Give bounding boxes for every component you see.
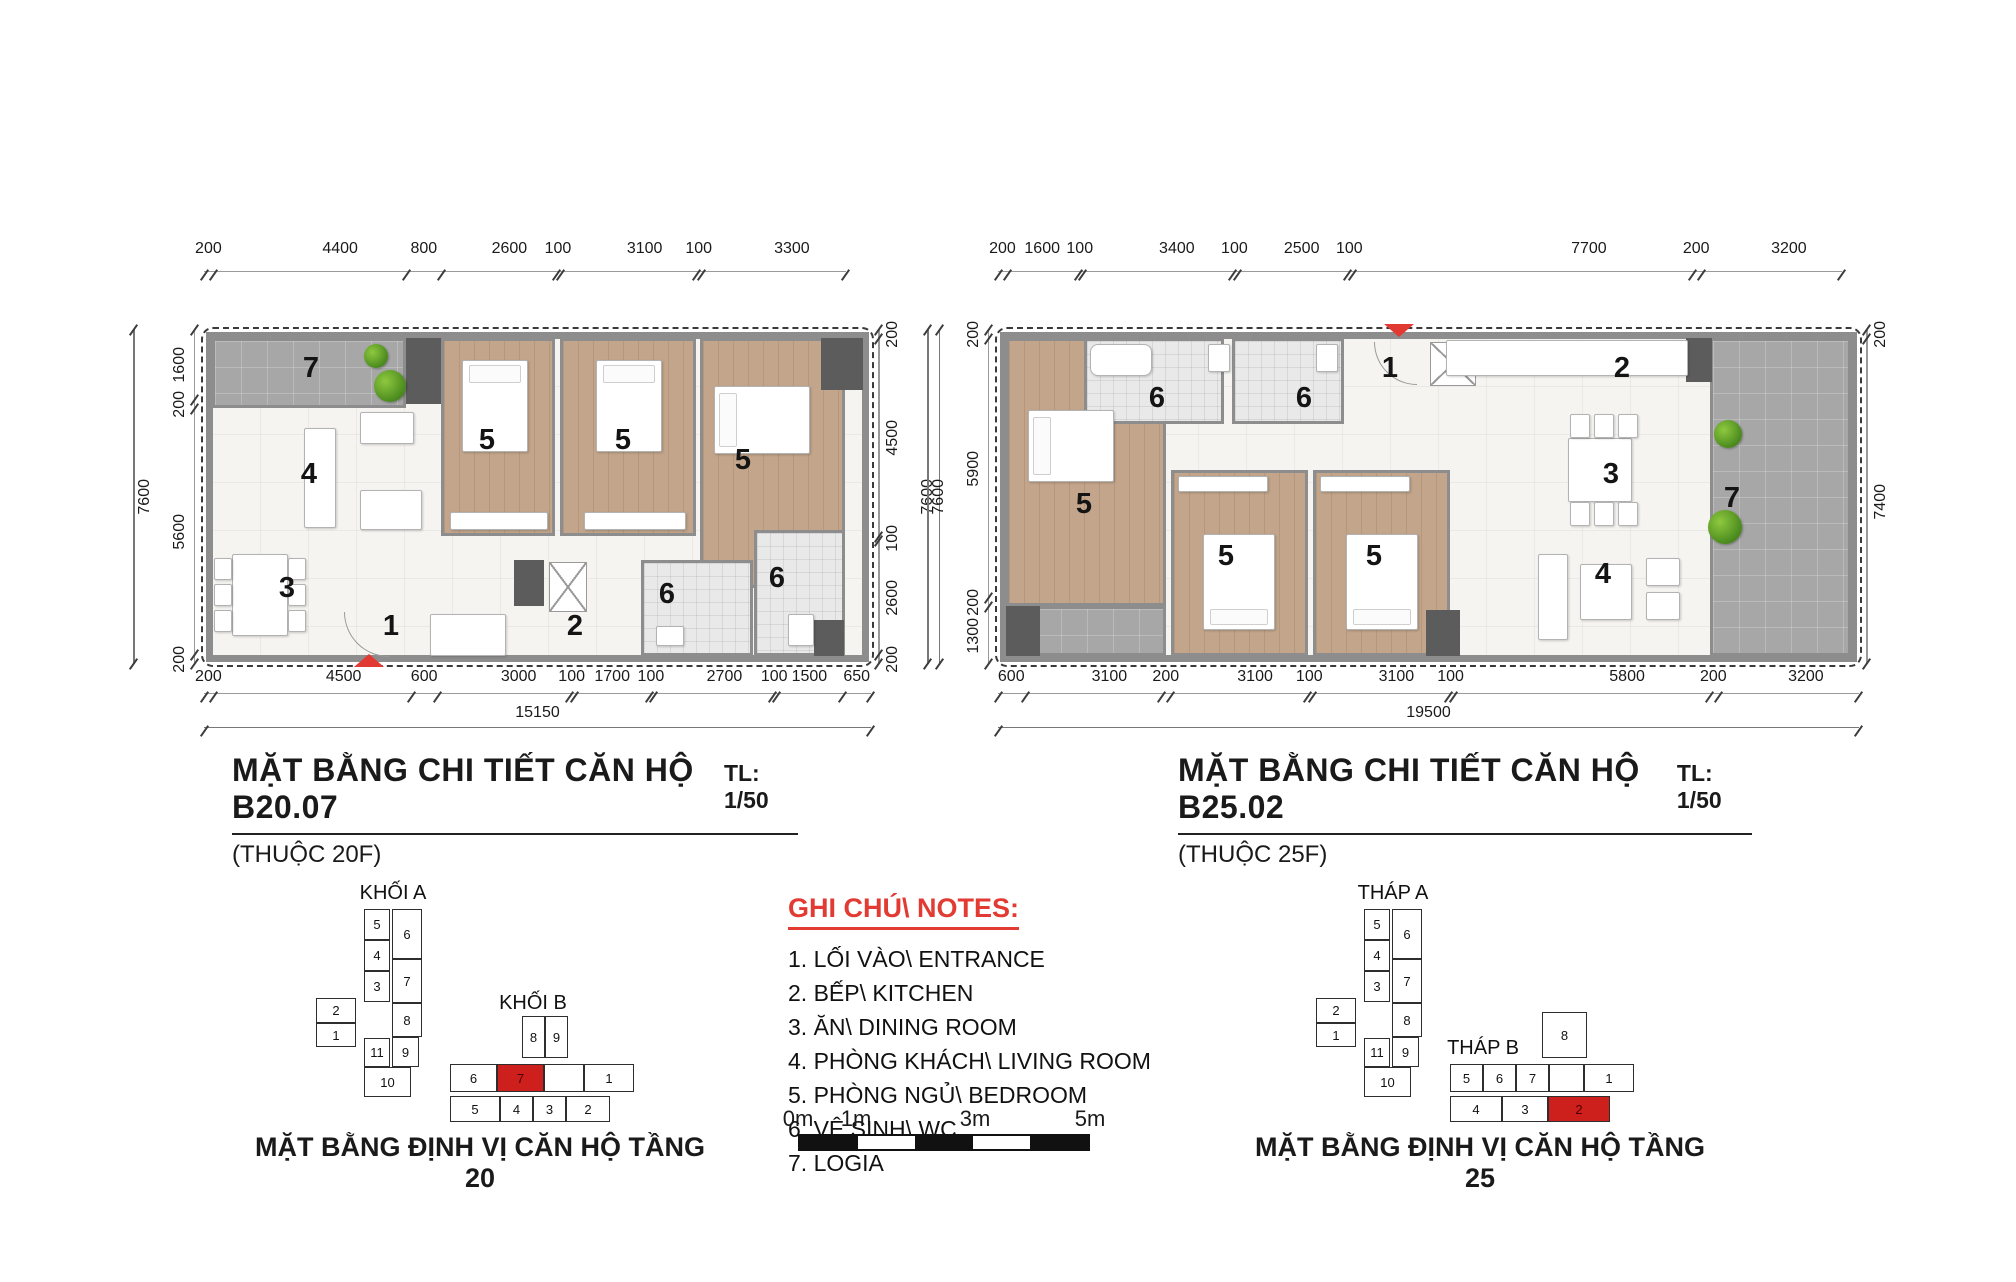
dim-segment: 3100 bbox=[560, 240, 696, 278]
title-row: MẶT BẰNG CHI TIẾT CĂN HỘ B25.02 TL: 1/50 bbox=[1178, 752, 1752, 835]
dim-segment: 200 bbox=[875, 655, 911, 664]
keyplan-unit-cell: 5 bbox=[450, 1096, 500, 1122]
keyplan-unit-cell: 8 bbox=[522, 1016, 545, 1058]
keyplan-unit-cell: 7 bbox=[497, 1064, 544, 1092]
keyplan-unit-cell: 2 bbox=[566, 1096, 610, 1122]
dim-value: 7600 bbox=[136, 479, 154, 515]
room-labels: 7555431266 bbox=[204, 330, 871, 664]
dim-segment: 7700 bbox=[1352, 240, 1692, 278]
dim-segment: 600 bbox=[998, 668, 1025, 700]
dim-chain-left-left-plan: 16002005600200 bbox=[162, 330, 198, 664]
tower-b-cells: 896715432 bbox=[300, 882, 660, 1172]
keyplan-unit-cell: 4 bbox=[500, 1096, 533, 1122]
dim-tick bbox=[1854, 725, 1863, 737]
dim-segment: 3100 bbox=[1170, 668, 1307, 700]
room-number: 1 bbox=[376, 610, 406, 644]
room-number: 7 bbox=[1717, 482, 1747, 516]
room-number: 3 bbox=[272, 572, 302, 606]
keyplan-unit-cell: 2 bbox=[1548, 1096, 1610, 1122]
dim-tick bbox=[129, 658, 138, 670]
dim-segment: 5900 bbox=[956, 339, 992, 598]
scalebar bbox=[798, 1134, 1090, 1151]
dim-segment: 200 bbox=[162, 655, 198, 664]
keyplan-unit-cell: 1 bbox=[1584, 1064, 1634, 1092]
legend-item: 2. BẾP\ KITCHEN bbox=[788, 976, 1151, 1010]
dim-chain-right-right-plan: 2007400 bbox=[1863, 330, 1899, 664]
scalebar-labels: 0m1m3m5m bbox=[798, 1106, 1090, 1130]
room-number: 5 bbox=[728, 444, 758, 478]
keyplan-caption: MẶT BẰNG ĐỊNH VỊ CĂN HỘ TẦNG 20 bbox=[240, 1132, 720, 1194]
dim-value: 19500 bbox=[1406, 704, 1451, 721]
dim-segment: 3200 bbox=[1701, 240, 1842, 278]
keyplan-unit-cell: 6 bbox=[1483, 1064, 1516, 1092]
scalebar-label: 5m bbox=[1075, 1106, 1106, 1132]
plan-title-left: MẶT BẰNG CHI TIẾT CĂN HỘ B20.07 TL: 1/50… bbox=[232, 752, 798, 869]
scalebar-segment bbox=[973, 1136, 1031, 1149]
room-number: 5 bbox=[608, 424, 638, 458]
drawing-sheet: 2004400800260010031001003300 7600 160020… bbox=[0, 0, 2016, 1282]
room-number: 4 bbox=[1588, 558, 1618, 592]
keyplan-unit-cell bbox=[544, 1064, 584, 1092]
scalebar-label: 1m bbox=[841, 1106, 872, 1132]
dim-segment: 1500 bbox=[776, 668, 842, 700]
room-number: 6 bbox=[762, 562, 792, 596]
dim-segment: 4400 bbox=[213, 240, 406, 278]
room-number: 5 bbox=[1211, 540, 1241, 574]
keyplan-unit-cell: 3 bbox=[533, 1096, 566, 1122]
room-number: 5 bbox=[472, 424, 502, 458]
floorplan-b25-02: 6612374555 bbox=[998, 330, 1859, 664]
plan-subtitle: (THUỘC 20F) bbox=[232, 841, 798, 869]
dim-value: 15150 bbox=[515, 704, 560, 721]
legend-item: 7. LOGIA bbox=[788, 1146, 1151, 1180]
legend-heading: GHI CHÚ\ NOTES: bbox=[788, 893, 1019, 930]
keyplan-unit-cell: 1 bbox=[584, 1064, 634, 1092]
dim-segment: 200 bbox=[1709, 668, 1718, 700]
scalebar-segment bbox=[800, 1136, 858, 1149]
legend-item: 3. ĂN\ DINING ROOM bbox=[788, 1010, 1151, 1044]
room-number: 4 bbox=[294, 458, 324, 492]
dim-segment: 3400 bbox=[1082, 240, 1232, 278]
dim-segment: 4500 bbox=[213, 668, 411, 700]
legend-item: 4. PHÒNG KHÁCH\ LIVING ROOM bbox=[788, 1044, 1151, 1078]
keyplan-unit-cell: 9 bbox=[545, 1016, 568, 1058]
dim-segment: 3300 bbox=[701, 240, 846, 278]
keyplan-unit-cell: 5 bbox=[1450, 1064, 1483, 1092]
keyplan-floor-20: KHỐI A KHỐI B 5436789211110 896715432 MẶ… bbox=[300, 882, 660, 1172]
dim-segment: 200 bbox=[998, 240, 1007, 278]
keyplan-unit-cell bbox=[1549, 1064, 1584, 1092]
dim-chain-top-left-plan: 2004400800260010031001003300 bbox=[204, 240, 846, 278]
dim-segment: 7400 bbox=[1863, 339, 1899, 664]
dim-tick bbox=[200, 725, 209, 737]
dim-segment: 5800 bbox=[1453, 668, 1709, 700]
room-number: 6 bbox=[1289, 382, 1319, 416]
room-number: 1 bbox=[1375, 352, 1405, 386]
keyplan-unit-cell: 4 bbox=[1450, 1096, 1502, 1122]
tower-b-cells: 85671432 bbox=[1300, 882, 1660, 1172]
dim-segment: 4500 bbox=[875, 339, 911, 537]
keyplan-unit-cell: 3 bbox=[1502, 1096, 1548, 1122]
dim-segment: 2700 bbox=[653, 668, 772, 700]
scalebar-segment bbox=[1030, 1136, 1088, 1149]
plan-title-right: MẶT BẰNG CHI TIẾT CĂN HỘ B25.02 TL: 1/50… bbox=[1178, 752, 1752, 869]
dim-segment: 2600 bbox=[441, 240, 555, 278]
scalebar-segment bbox=[858, 1136, 916, 1149]
floorplan-b20-07: 7555431266 bbox=[204, 330, 871, 664]
dim-chain-right-left-plan: 20045001002600200 bbox=[875, 330, 911, 664]
dim-tick bbox=[994, 725, 1003, 737]
scalebar-segment bbox=[915, 1136, 973, 1149]
dim-chain-bottom-right-plan: 60031002003100100310010058002003200 bbox=[998, 668, 1859, 700]
dim-total-width-right-plan: 19500 bbox=[998, 700, 1859, 734]
dim-segment: 2500 bbox=[1237, 240, 1347, 278]
plan-title-text: MẶT BẰNG CHI TIẾT CĂN HỘ B25.02 bbox=[1178, 752, 1677, 826]
dim-segment: 3200 bbox=[1718, 668, 1859, 700]
room-number: 5 bbox=[1069, 488, 1099, 522]
keyplan-unit-cell: 6 bbox=[450, 1064, 497, 1092]
plan-subtitle: (THUỘC 25F) bbox=[1178, 841, 1752, 869]
dim-segment: 1300 bbox=[956, 607, 992, 664]
dim-segment: 200 bbox=[204, 240, 213, 278]
room-number: 2 bbox=[560, 610, 590, 644]
scalebar-label: 3m bbox=[960, 1106, 991, 1132]
dim-segment: 3100 bbox=[1025, 668, 1162, 700]
dim-segment: 600 bbox=[411, 668, 437, 700]
dim-chain-left-right-plan: 20059002001300 bbox=[956, 330, 992, 664]
dim-tick bbox=[129, 324, 138, 336]
dim-segment: 200 bbox=[204, 668, 213, 700]
dim-segment: 5600 bbox=[162, 409, 198, 655]
scalebar-label: 0m bbox=[783, 1106, 814, 1132]
keyplan-caption: MẶT BẰNG ĐỊNH VỊ CĂN HỘ TẦNG 25 bbox=[1240, 1132, 1720, 1194]
dim-segment: 200 bbox=[956, 330, 992, 339]
dim-total-height-right-plan: 7600 bbox=[924, 330, 954, 664]
plan-title-text: MẶT BẰNG CHI TIẾT CĂN HỘ B20.07 bbox=[232, 752, 724, 826]
dim-segment: 3000 bbox=[437, 668, 569, 700]
dim-segment: 800 bbox=[406, 240, 441, 278]
title-row: MẶT BẰNG CHI TIẾT CĂN HỘ B20.07 TL: 1/50 bbox=[232, 752, 798, 835]
dim-chain-top-right-plan: 20016001003400100250010077002003200 bbox=[998, 240, 1842, 278]
dim-segment: 2600 bbox=[875, 541, 911, 655]
dim-chain-bottom-left-plan: 20045006003000100170010027001001500650 bbox=[204, 668, 871, 700]
dim-segment: 3100 bbox=[1312, 668, 1449, 700]
legend-item: 1. LỐI VÀO\ ENTRANCE bbox=[788, 942, 1151, 976]
dim-total-width-left-plan: 15150 bbox=[204, 700, 871, 734]
dim-segment: 650 bbox=[842, 668, 871, 700]
keyplan-floor-25: THÁP A THÁP B 5436789211110 85671432 MẶT… bbox=[1300, 882, 1660, 1172]
dim-tick bbox=[923, 658, 932, 670]
room-number: 2 bbox=[1607, 352, 1637, 386]
dim-value: 7600 bbox=[930, 479, 948, 515]
dim-total-height-left-plan: 7600 bbox=[130, 330, 160, 664]
room-number: 6 bbox=[1142, 382, 1172, 416]
plan-scale-note: TL: 1/50 bbox=[1677, 760, 1752, 814]
keyplan-unit-cell: 8 bbox=[1542, 1012, 1587, 1058]
room-number: 3 bbox=[1596, 458, 1626, 492]
keyplan-unit-cell: 7 bbox=[1516, 1064, 1549, 1092]
plan-scale-note: TL: 1/50 bbox=[724, 760, 798, 814]
dim-tick bbox=[923, 324, 932, 336]
room-number: 6 bbox=[652, 578, 682, 612]
room-number: 5 bbox=[1359, 540, 1389, 574]
room-number: 7 bbox=[296, 352, 326, 386]
dim-tick bbox=[866, 725, 875, 737]
dim-segment: 200 bbox=[1692, 240, 1701, 278]
room-labels: 6612374555 bbox=[998, 330, 1859, 664]
